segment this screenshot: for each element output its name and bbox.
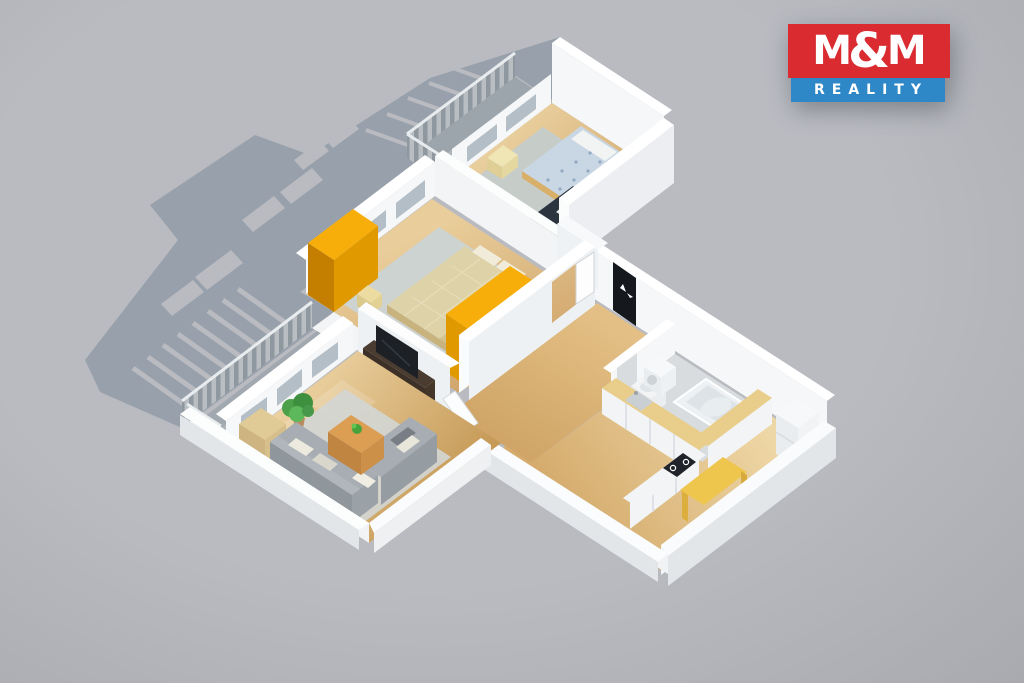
- logo-m-left: M: [812, 31, 851, 71]
- realty-logo: M & M REALITY: [788, 24, 950, 102]
- kitchen-faucet: [634, 391, 638, 395]
- logo-reality-bar: REALITY: [791, 78, 945, 102]
- floor-plan-render: [0, 0, 1024, 683]
- logo-mm-box: M & M: [788, 24, 950, 78]
- logo-ampersand: &: [848, 27, 890, 75]
- dining-table-leg-1: [682, 491, 688, 522]
- floor-plan-scene: M & M REALITY: [0, 0, 1024, 683]
- logo-m-right: M: [887, 31, 926, 71]
- table-plant-highlight: [352, 424, 357, 429]
